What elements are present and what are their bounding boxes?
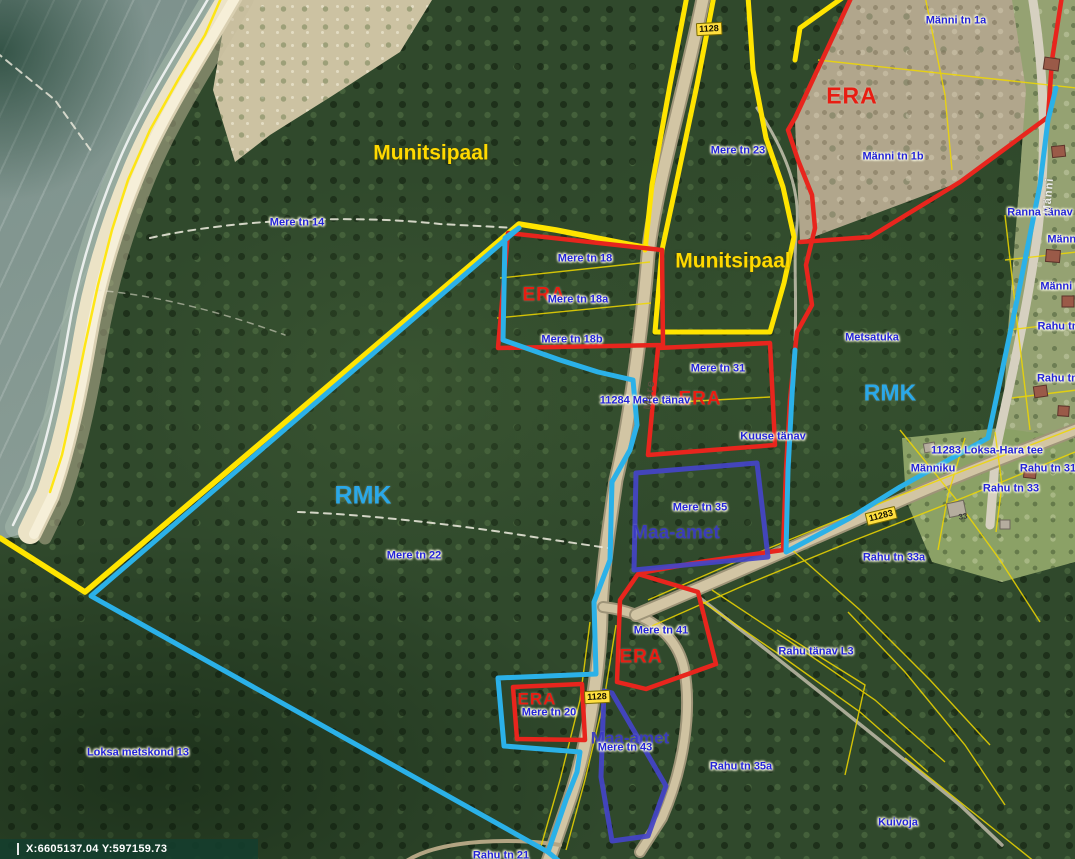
scale-tick xyxy=(17,843,19,855)
status-bar: X:6605137.04 Y:597159.73 xyxy=(0,839,258,859)
map-canvas[interactable]: MunitsipaalMunitsipaalERAERAERAERAERARMK… xyxy=(0,0,1075,859)
cursor-coordinates: X:6605137.04 Y:597159.73 xyxy=(26,843,167,855)
